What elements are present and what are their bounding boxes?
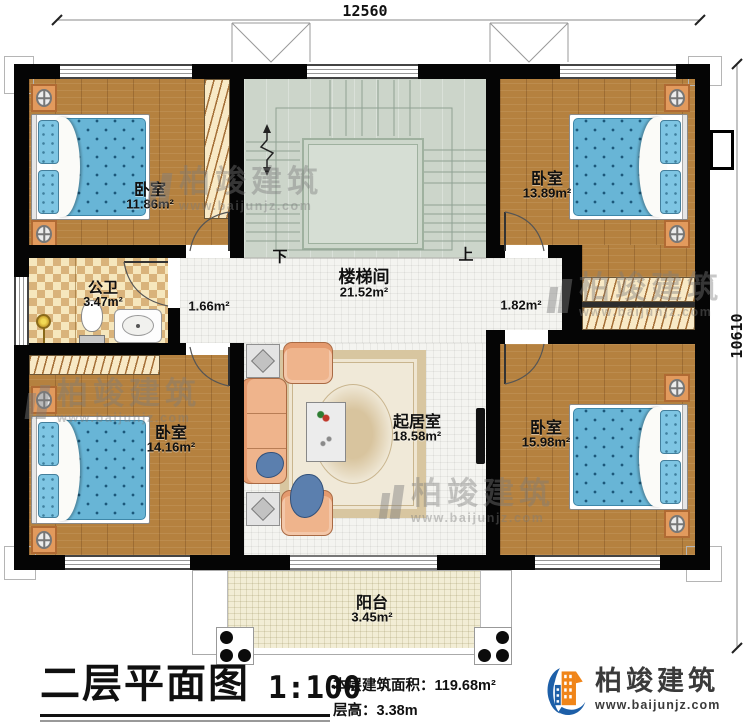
balcony-post-right <box>474 627 512 665</box>
wall-bedroom-tr-south-b <box>548 245 562 258</box>
pillow <box>38 422 59 466</box>
nightstand <box>31 526 57 554</box>
floor-height-line: 层高：3.38m <box>333 699 418 720</box>
tv <box>476 408 485 464</box>
lamp-icon <box>36 89 52 107</box>
post-dot <box>478 649 491 662</box>
room-area-bathroom: 3.47m² <box>83 295 123 309</box>
hall-area-right: 1.82m² <box>500 298 541 313</box>
nightstand <box>664 374 690 402</box>
title-underline-thick <box>40 714 330 717</box>
room-area-bedroom-bl: 14.16m² <box>147 440 195 455</box>
lamp-icon <box>669 515 685 533</box>
lamp-icon <box>669 89 685 107</box>
dimension-width-label: 12560 <box>330 2 400 20</box>
brand-website: www.baijunjz.com <box>595 698 720 712</box>
bath-lamp-icon <box>36 314 51 329</box>
lamp-icon <box>36 391 52 409</box>
wall-closet-divider <box>582 302 695 307</box>
lamp-icon <box>36 531 52 549</box>
wardrobe-bedroom-tr <box>582 277 695 302</box>
coffee-table <box>306 402 346 462</box>
window-bedroom-tr <box>560 64 676 79</box>
nightstand <box>31 84 57 112</box>
room-area-bedroom-br: 15.98m² <box>522 435 570 450</box>
nightstand <box>664 510 690 538</box>
lamp-icon <box>669 225 685 243</box>
pillow <box>38 474 59 518</box>
post-dot <box>220 649 233 662</box>
side-table <box>246 492 280 526</box>
window-bathroom <box>14 277 29 345</box>
nightstand <box>664 84 690 112</box>
room-area-stairwell: 21.52m² <box>340 285 388 300</box>
plan-title: 二层平面图 <box>40 664 250 704</box>
bed-bedroom-tr <box>569 114 688 220</box>
wall-bathroom-south <box>14 343 186 355</box>
plan-title-row: 二层平面图 1:100 <box>40 664 361 704</box>
stair-down-mark: 下 <box>272 246 287 267</box>
brand-logo-icon <box>543 663 587 717</box>
floor-hall-right <box>486 258 562 330</box>
room-area-bedroom-tr: 13.89m² <box>523 186 571 201</box>
balcony-door <box>290 555 437 570</box>
floor-area-line: 本层建筑面积：119.68m² <box>333 674 496 695</box>
lamp-icon <box>36 225 52 243</box>
pillow <box>660 120 681 164</box>
room-area-living: 18.58m² <box>393 429 441 444</box>
lamp-icon <box>669 379 685 397</box>
room-area-bedroom-tl: 11.86m² <box>126 197 174 212</box>
wall-bedroom-tl-south <box>14 245 186 258</box>
nightstand <box>664 220 690 248</box>
brand-logo: 柏竣建筑 www.baijunjz.com <box>543 663 720 717</box>
title-underline-thin <box>40 720 330 722</box>
wall-bedroom-tr-south-a <box>486 245 505 258</box>
wall-bedroom-br-north-b <box>548 330 695 344</box>
balcony-post-left <box>216 627 254 665</box>
nightstand <box>31 386 57 414</box>
window-bedroom-bl <box>65 555 190 570</box>
floor-bedroom-tr-alcove <box>582 245 695 277</box>
floor-area-label: 本层建筑面积： <box>333 678 435 694</box>
stair-up-mark: 上 <box>458 244 473 265</box>
side-table <box>246 344 280 378</box>
wardrobe-bedroom-tl <box>204 79 230 219</box>
pillow <box>660 460 681 504</box>
window-bedroom-br <box>535 555 660 570</box>
wall-stair-left <box>230 64 244 258</box>
wall-right <box>695 64 710 570</box>
wall-living-west <box>230 343 244 555</box>
wall-bathroom-right <box>168 308 180 343</box>
window-bedroom-tl <box>60 64 192 79</box>
floor-area-value: 119.68m² <box>435 678 496 694</box>
bed-bedroom-br <box>569 404 688 510</box>
floor-plan-page: 12560 10610 卧室 11.86m² 卧室 13.89m² 卧室 14.… <box>0 0 750 728</box>
wall-living-east <box>486 330 500 555</box>
pillow <box>660 170 681 214</box>
bay-box-right <box>710 130 734 170</box>
floor-height-value: 3.38m <box>377 703 418 719</box>
bed-bedroom-bl <box>31 416 150 524</box>
bathroom-partition <box>75 258 76 343</box>
pillow <box>38 120 59 164</box>
stair-landing <box>302 138 424 250</box>
post-dot <box>220 631 233 644</box>
pillow <box>660 410 681 454</box>
post-dot <box>496 649 509 662</box>
pillow <box>38 170 59 214</box>
post-dot <box>496 631 509 644</box>
wardrobe-bedroom-bl <box>29 355 160 375</box>
room-area-balcony: 3.45m² <box>351 610 392 625</box>
hall-area-left: 1.66m² <box>188 299 229 314</box>
sink-icon <box>114 309 162 343</box>
floor-height-label: 层高： <box>333 703 377 719</box>
dimension-height-label: 10610 <box>728 301 746 371</box>
post-dot <box>238 649 251 662</box>
window-stairwell <box>307 64 418 79</box>
brand-name: 柏竣建筑 <box>595 668 720 695</box>
armchair <box>283 342 333 384</box>
nightstand <box>31 220 57 248</box>
wall-stair-right <box>486 64 500 258</box>
wardrobe-bedroom-br <box>582 307 695 330</box>
